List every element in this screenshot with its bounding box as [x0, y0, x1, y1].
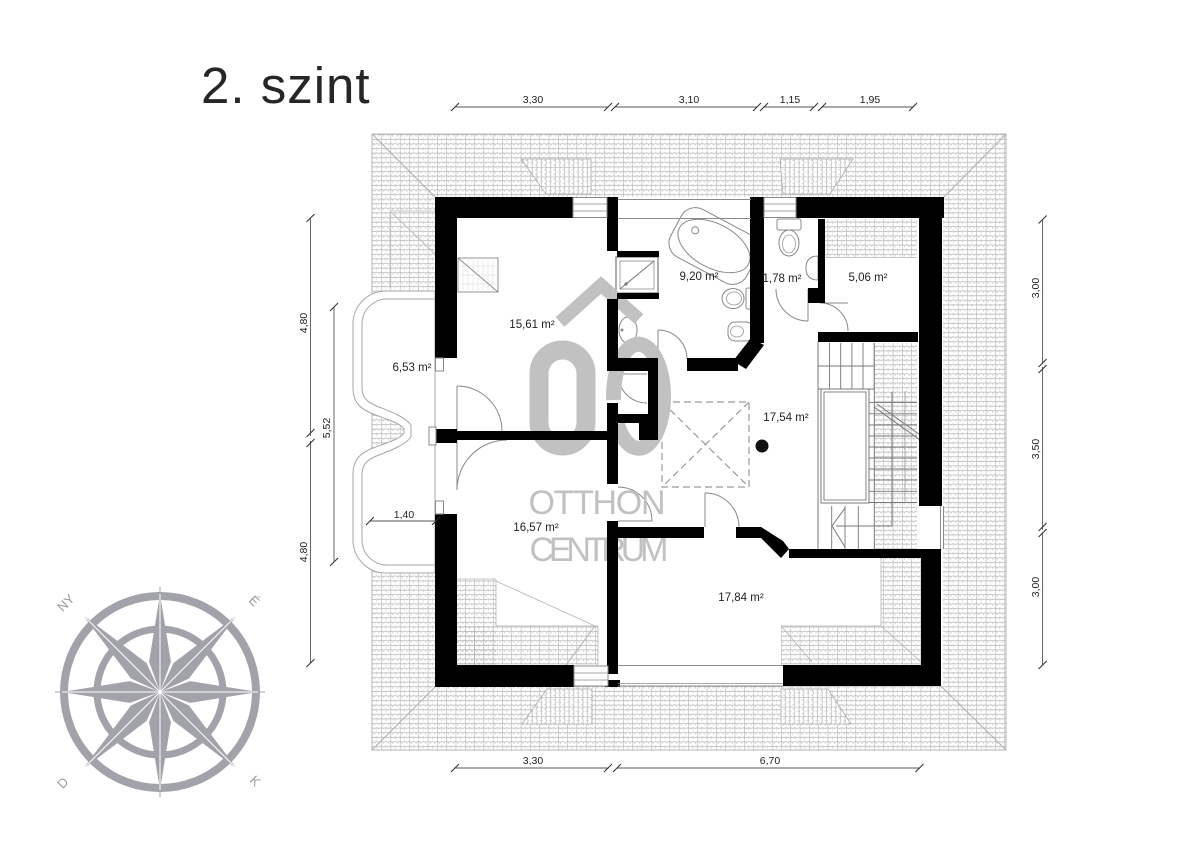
- svg-text:3,50: 3,50: [1030, 439, 1042, 460]
- svg-text:1,95: 1,95: [860, 94, 881, 106]
- svg-text:15,61 m²: 15,61 m²: [509, 319, 555, 331]
- svg-text:3,00: 3,00: [1030, 577, 1042, 598]
- svg-text:5,52: 5,52: [321, 418, 333, 439]
- svg-text:6,53 m²: 6,53 m²: [393, 362, 432, 374]
- svg-text:1,78 m²: 1,78 m²: [763, 273, 802, 285]
- svg-text:6,70: 6,70: [760, 755, 781, 767]
- svg-text:17,54 m²: 17,54 m²: [763, 412, 809, 424]
- svg-text:1,15: 1,15: [780, 94, 801, 106]
- svg-text:OTTHON: OTTHON: [529, 484, 668, 522]
- svg-text:17,84 m²: 17,84 m²: [718, 592, 764, 604]
- svg-text:1,40: 1,40: [394, 509, 415, 521]
- svg-text:4,80: 4,80: [298, 313, 310, 334]
- svg-text:5,06 m²: 5,06 m²: [849, 272, 888, 284]
- svg-text:2. szint: 2. szint: [201, 57, 371, 114]
- svg-text:3,00: 3,00: [1030, 278, 1042, 299]
- svg-text:16,57 m²: 16,57 m²: [513, 522, 559, 534]
- svg-text:9,20 m²: 9,20 m²: [680, 271, 719, 283]
- svg-text:3,30: 3,30: [523, 755, 544, 767]
- svg-text:3,10: 3,10: [679, 94, 700, 106]
- svg-text:3,30: 3,30: [523, 94, 544, 106]
- svg-text:4,80: 4,80: [298, 542, 310, 563]
